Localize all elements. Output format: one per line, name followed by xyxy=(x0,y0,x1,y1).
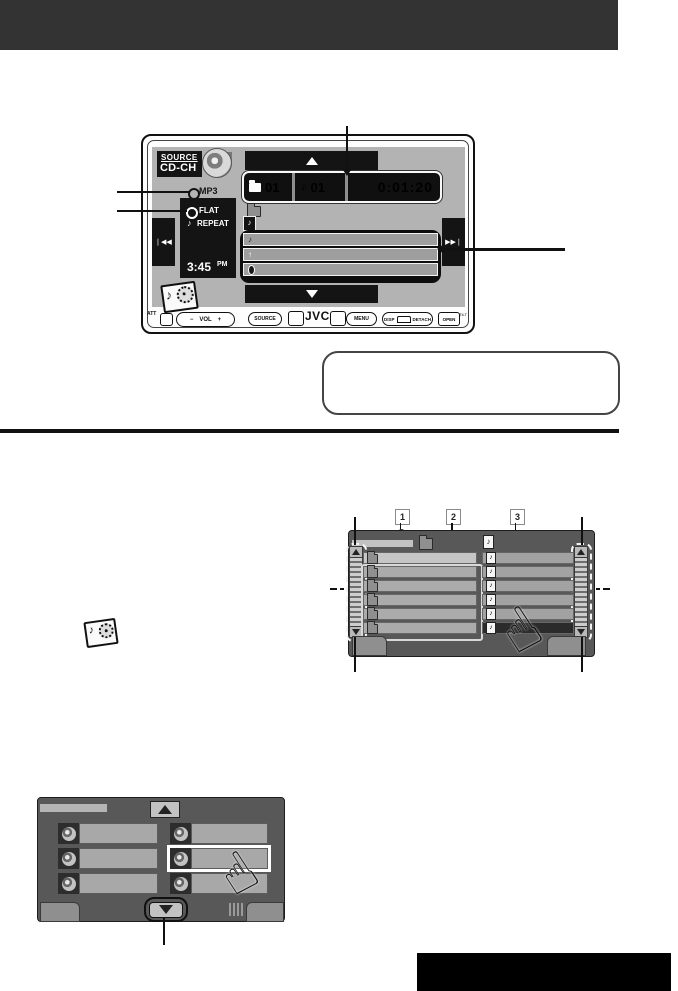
menu-item xyxy=(58,848,158,869)
folder-row xyxy=(363,608,477,620)
browse-callout-left-bottom xyxy=(354,637,356,672)
browse-dash-left-b xyxy=(340,588,344,590)
tag-row-artist: ↑ xyxy=(243,248,438,261)
row-note-icon: ♪ xyxy=(486,622,496,634)
mode-clock-box: FLAT ♪ REPEAT 3:45 PM xyxy=(180,198,236,278)
row-note-icon: ♪ xyxy=(486,580,496,592)
music-logo-icon: ♪ xyxy=(160,281,199,314)
play-mode: REPEAT xyxy=(197,219,229,228)
callout-line-top xyxy=(346,126,348,172)
menu-item xyxy=(58,823,158,844)
folder-row xyxy=(363,580,477,592)
folder-icon xyxy=(249,183,261,192)
disc-icon xyxy=(58,873,79,894)
track-row: ♪ xyxy=(482,580,574,592)
source-button: SOURCE xyxy=(248,312,282,326)
label-1: 1 xyxy=(395,509,410,525)
row-note-icon: ♪ xyxy=(486,594,496,606)
row-note-icon: ♪ xyxy=(486,552,496,564)
browse-dash-right-b xyxy=(603,588,610,590)
menu-button: MENU xyxy=(346,312,377,326)
disp-detach-button: DISP DETACH xyxy=(382,312,433,326)
note-icon: ♪ xyxy=(301,181,307,193)
tag-row-track: ♪ xyxy=(243,233,438,246)
row-folder-icon xyxy=(367,624,378,634)
browse-dash-right-a xyxy=(596,588,600,590)
forward-button: ▶▶❘ xyxy=(442,218,465,266)
panel-square-left xyxy=(288,311,304,326)
folder-number: 01 xyxy=(265,180,279,195)
track-number: 01 xyxy=(311,180,325,195)
folder-row xyxy=(363,622,477,634)
disc-icon xyxy=(170,848,191,869)
artist-icon: ↑ xyxy=(248,250,252,259)
screen-down-button xyxy=(245,285,378,303)
screen-up-button xyxy=(245,151,378,170)
cd-icon xyxy=(202,148,232,178)
disc-icon xyxy=(170,873,191,894)
browse-callout-left-top xyxy=(354,517,356,545)
browse-callout-right-top xyxy=(581,517,583,545)
folder-row xyxy=(363,566,477,578)
callout-bracket xyxy=(437,244,444,254)
elapsed-time: 0:01:20 xyxy=(348,179,440,195)
browse-tab-left xyxy=(352,636,387,656)
inline-music-logo-icon: ♪ xyxy=(83,618,118,648)
disc-icon xyxy=(58,848,79,869)
label-3: 3 xyxy=(510,509,525,525)
browse-dash-left-a xyxy=(330,588,337,590)
footer-bar xyxy=(417,953,671,991)
tilt-label: TILT xyxy=(459,312,467,317)
row-folder-icon xyxy=(367,568,378,578)
row-folder-icon xyxy=(367,582,378,592)
open-button: OPEN xyxy=(438,312,460,326)
menu-down-button xyxy=(149,902,183,918)
tag-info-list: ♪ ↑ xyxy=(240,230,441,283)
track-indicator: ♪ 01 xyxy=(295,180,345,195)
row-note-icon: ♪ xyxy=(486,566,496,578)
right-scrollbar xyxy=(574,557,588,627)
current-track-icon: ♪ xyxy=(243,216,256,231)
folder-indicator: 01 xyxy=(244,180,292,195)
browse-note-icon: ♪ xyxy=(483,535,494,549)
up-arrow-icon xyxy=(306,157,318,165)
track-row: ♪ xyxy=(482,552,574,564)
sound-mode: FLAT xyxy=(199,206,219,215)
label-2: 2 xyxy=(446,509,461,525)
row-folder-icon xyxy=(367,610,378,620)
menu-item xyxy=(58,873,158,894)
panel-square-right xyxy=(330,311,346,326)
callout-arrowhead xyxy=(343,170,351,176)
folder-row xyxy=(363,552,477,564)
row-folder-icon xyxy=(367,596,378,606)
section-divider xyxy=(0,429,619,433)
header-bar xyxy=(0,0,618,50)
rewind-icon: ◀◀ xyxy=(161,238,172,246)
repeat-note-icon: ♪ xyxy=(187,218,192,228)
source-value: CD-CH xyxy=(160,162,202,174)
disc-icon xyxy=(170,823,191,844)
forward-icon: ▶▶ xyxy=(445,238,456,246)
menu-down-callout xyxy=(163,918,165,945)
callout-line-taglist xyxy=(444,248,565,251)
disc-icon xyxy=(58,823,79,844)
brand-logo: JVC xyxy=(305,309,330,323)
down-arrow-icon xyxy=(159,905,173,914)
menu-up-button xyxy=(150,801,180,818)
track-title-icon: ♪ xyxy=(248,235,252,244)
browse-callout-right-bottom xyxy=(581,637,583,672)
album-icon xyxy=(248,265,255,275)
clock-suffix: PM xyxy=(217,261,228,268)
row-folder-icon xyxy=(367,554,378,564)
callout-box xyxy=(322,351,620,415)
clock: 3:45 xyxy=(187,260,211,274)
track-row: ♪ xyxy=(482,566,574,578)
menu-tab-left xyxy=(40,902,80,922)
callout-line-mp3 xyxy=(117,191,189,193)
menu-title-bar xyxy=(40,804,107,812)
menu-item xyxy=(170,823,268,844)
source-box: SOURCE CD-CH xyxy=(157,151,202,177)
down-arrow-icon xyxy=(306,290,318,298)
track-info-bar: 01 ♪ 01 0:01:20 xyxy=(242,171,442,203)
browse-folder-icon xyxy=(419,538,433,550)
mp3-indicator: MP3 xyxy=(199,186,218,196)
menu-tab-right xyxy=(246,902,284,922)
volume-button: − VOL + xyxy=(176,312,235,327)
source-label: SOURCE xyxy=(161,153,202,162)
folder-row xyxy=(363,594,477,606)
att-label: ATT xyxy=(147,311,156,317)
att-button xyxy=(160,313,173,326)
up-arrow-icon xyxy=(158,805,172,814)
callout-line-flat xyxy=(117,210,187,212)
manual-page: SOURCE CD-CH MP3 01 ♪ 01 0:01:20 FLAT ♪ … xyxy=(0,0,678,991)
detach-slider xyxy=(397,316,411,323)
rewind-button: ❘◀◀ xyxy=(152,218,175,266)
tag-row-album xyxy=(243,263,438,276)
menu-down-button-ring xyxy=(144,897,188,922)
